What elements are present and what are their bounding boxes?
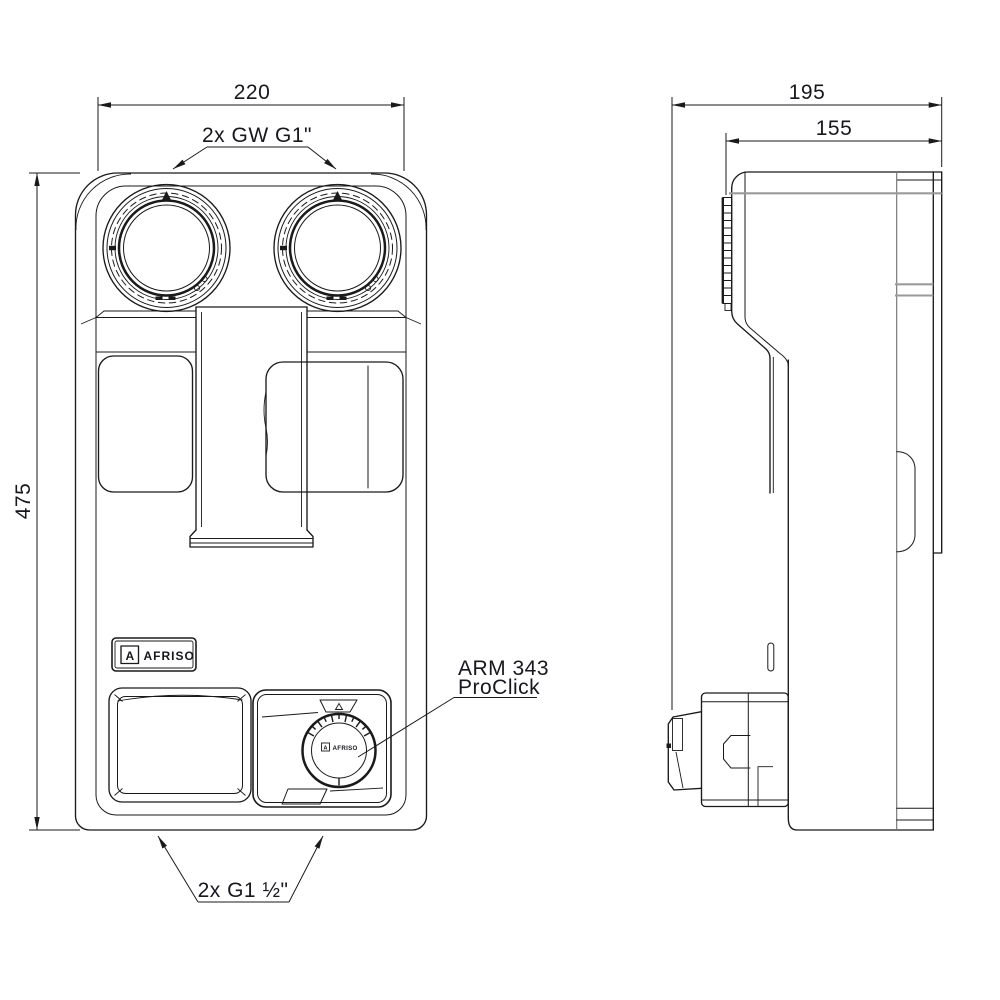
- pump-flange: [190, 530, 313, 547]
- dim-front-height: 475: [12, 173, 80, 830]
- brand-mark: A: [125, 649, 134, 663]
- brand-plate: A AFRISO: [112, 638, 196, 671]
- dim-front-height-text: 475: [12, 483, 35, 520]
- insulation-recess-left: [99, 356, 193, 492]
- dim-side-depth: 195: [672, 81, 942, 710]
- label-bottom-ports-text: 2x G1 ½": [198, 879, 289, 902]
- dial-scale-ticks: [307, 714, 370, 736]
- side-bottom-band: [897, 808, 934, 820]
- flow-direction-marker: [333, 191, 342, 200]
- actuator-bottom-tab: [282, 789, 327, 804]
- actuator-top-tab: [320, 700, 357, 712]
- actuator-dial: A AFRISO: [303, 704, 376, 788]
- dial-top-marker: [336, 704, 343, 710]
- dial-brand-name: AFRISO: [333, 745, 358, 752]
- actuator-front: A AFRISO: [253, 690, 391, 807]
- technical-drawing-page: A AFRISO: [0, 0, 1000, 1000]
- dim-side-depth-text: 195: [789, 81, 826, 104]
- side-handle-groove: [897, 452, 915, 552]
- front-view: A AFRISO: [76, 173, 427, 830]
- insulation-shelf: [81, 311, 421, 352]
- pump-group-drawing: A AFRISO: [0, 0, 1000, 1000]
- side-body-outline: [732, 172, 942, 830]
- flow-direction-marker: [162, 191, 171, 200]
- dial-brand-mark: A: [324, 746, 328, 752]
- dim-side-depth-inner: 155: [726, 117, 942, 195]
- label-top-ports: 2x GW G1": [173, 124, 336, 169]
- thermometer-valve-left: [103, 185, 230, 312]
- label-actuator-line2: ProClick: [458, 676, 540, 699]
- thermometer-valve-right: [274, 185, 401, 312]
- insulation-recess-right: [264, 362, 403, 492]
- side-slot: [768, 643, 774, 671]
- knurled-knob-side: [723, 198, 732, 311]
- proclick-lever-side: [667, 712, 702, 790]
- brand-name: AFRISO: [144, 649, 195, 663]
- label-top-ports-text: 2x GW G1": [202, 124, 312, 147]
- pump-channel: [196, 307, 307, 530]
- label-bottom-ports: 2x G1 ½": [158, 836, 323, 902]
- side-view: [667, 172, 942, 830]
- valve-cover-box: [109, 688, 251, 802]
- dim-side-depth-inner-text: 155: [816, 117, 853, 140]
- actuator-side: [667, 693, 789, 807]
- dim-front-width-text: 220: [234, 81, 271, 104]
- side-gray-lines: [729, 193, 942, 295]
